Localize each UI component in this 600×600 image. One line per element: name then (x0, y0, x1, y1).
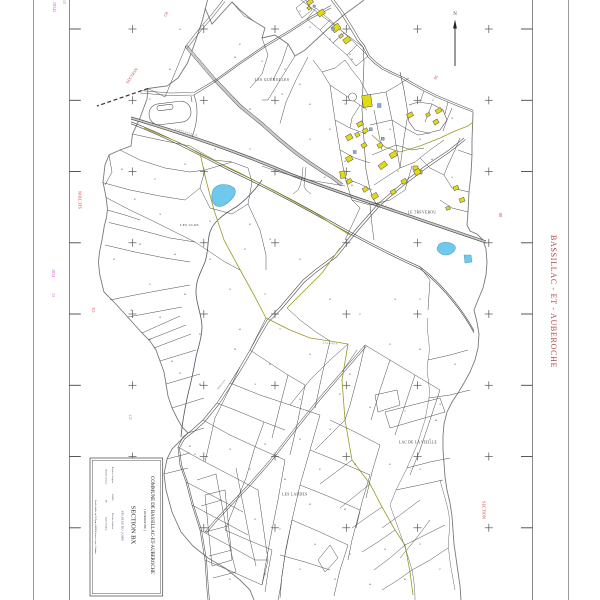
svg-text:Numéro d'ordre: Numéro d'ordre (105, 469, 108, 484)
svg-text:51: 51 (149, 284, 151, 286)
svg-text:19: 19 (130, 310, 132, 312)
svg-text:18345: 18345 (52, 2, 57, 12)
svg-text:LES CLOS: LES CLOS (180, 223, 199, 227)
svg-text:22: 22 (299, 569, 301, 571)
svg-text:Date d'édition: Date d'édition (105, 517, 108, 531)
svg-text:LAC DE LA VIEILLE: LAC DE LA VIEILLE (399, 441, 438, 445)
svg-text:SECTION: SECTION (78, 191, 83, 209)
svg-text:52: 52 (309, 27, 311, 29)
svg-text:SECTION: SECTION (482, 501, 487, 519)
svg-text:31: 31 (397, 171, 399, 173)
svg-text:BASSILLAC - ET - AUBEROCHE: BASSILLAC - ET - AUBEROCHE (549, 235, 558, 368)
svg-text:LES LANDES: LES LANDES (282, 493, 307, 497)
svg-text:89: 89 (329, 39, 331, 41)
svg-text:( DORDOGNE ): ( DORDOGNE ) (143, 509, 147, 531)
svg-text:91: 91 (349, 554, 351, 556)
svg-text:72: 72 (264, 294, 266, 296)
svg-text:Feuille établie en 2012 par la: Feuille établie en 2012 par la DGFiP et … (94, 500, 96, 554)
svg-text:13: 13 (51, 293, 56, 297)
svg-text:49: 49 (309, 504, 311, 506)
svg-text:81: 81 (319, 469, 321, 471)
svg-text:82: 82 (171, 361, 173, 363)
svg-text:42: 42 (309, 104, 311, 106)
svg-text:41: 41 (299, 84, 301, 86)
svg-text:21: 21 (419, 299, 421, 301)
svg-text:LES GUÉROLLES: LES GUÉROLLES (255, 77, 290, 82)
svg-text:12: 12 (419, 469, 421, 471)
svg-text:C7: C7 (128, 415, 133, 420)
svg-text:52: 52 (284, 69, 286, 71)
svg-text:1834: 1834 (51, 269, 56, 277)
svg-text:89: 89 (249, 109, 251, 111)
svg-text:FEUILLE DU 1/2000: FEUILLE DU 1/2000 (121, 511, 125, 541)
svg-text:69: 69 (419, 349, 421, 351)
svg-text:SECTION BX: SECTION BX (130, 506, 137, 545)
svg-text:Échelle d'origine: Échelle d'origine (111, 467, 114, 483)
svg-text:62: 62 (249, 224, 251, 226)
svg-text:LE TREVEROU: LE TREVEROU (408, 211, 437, 215)
svg-text:1/2000: 1/2000 (111, 494, 114, 501)
svg-text:39: 39 (264, 444, 266, 446)
svg-text:29: 29 (179, 373, 181, 375)
svg-text:Échelle d'édition: Échelle d'édition (111, 513, 114, 530)
svg-text:32: 32 (389, 344, 391, 346)
svg-text:31: 31 (149, 99, 151, 101)
svg-text:41: 41 (134, 199, 136, 201)
svg-text:88: 88 (498, 213, 503, 217)
svg-text:71: 71 (404, 411, 406, 413)
svg-text:N: N (453, 12, 457, 17)
svg-text:61: 61 (269, 364, 271, 366)
svg-text:92: 92 (299, 439, 301, 441)
svg-text:59: 59 (334, 579, 336, 581)
svg-text:C9: C9 (91, 308, 96, 313)
svg-text:COMMUNE DE BASSILLAC-ET-AUBERO: COMMUNE DE BASSILLAC-ET-AUBEROCHE (149, 476, 154, 574)
svg-text:79: 79 (344, 104, 346, 106)
svg-text:13: 13 (62, 0, 67, 4)
svg-text:99: 99 (139, 244, 141, 246)
